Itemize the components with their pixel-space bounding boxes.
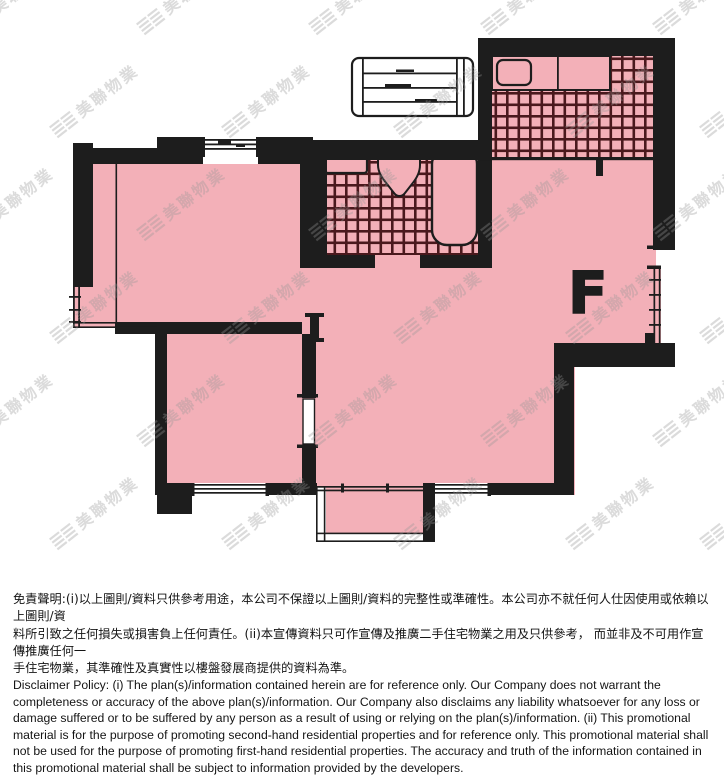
bathtub-icon bbox=[432, 149, 477, 245]
disclaimer: 免責聲明:(i)以上圖則/資料只供參考用途，本公司不保證以上圖則/資料的完整性或… bbox=[13, 591, 715, 776]
unit-label: F bbox=[568, 259, 608, 327]
ac-platform bbox=[352, 58, 473, 116]
disclaimer-line-en: Disclaimer Policy: (i) The plan(s)/infor… bbox=[13, 677, 715, 693]
disclaimer-line-en: not be used for the purpose of promoting… bbox=[13, 743, 715, 759]
disclaimer-line-en: completeness or accuracy of the above pl… bbox=[13, 694, 715, 710]
floor-plan-svg: F bbox=[0, 0, 724, 560]
disclaimer-line-zh: 手住宅物業，其準確性及真實性以樓盤發展商提供的資料為準。 bbox=[13, 660, 715, 677]
balcony bbox=[313, 487, 437, 543]
disclaimer-line-en: material is for the purpose of promoting… bbox=[13, 727, 715, 743]
kitchen-sink-icon bbox=[497, 60, 531, 85]
disclaimer-line-en: this promotional material shall be subje… bbox=[13, 760, 715, 776]
disclaimer-line-zh: 免責聲明:(i)以上圖則/資料只供參考用途，本公司不保證以上圖則/資料的完整性或… bbox=[13, 591, 715, 626]
disclaimer-line-en: damage suffered or to be suffered by any… bbox=[13, 710, 715, 726]
door-leaf bbox=[303, 399, 315, 444]
floor-plan: F bbox=[0, 0, 724, 560]
disclaimer-line-zh: 料所引致之任何損失或損害負上任何責任。(ii)本宣傳資料只可作宣傳及推廣二手住宅… bbox=[13, 626, 715, 661]
